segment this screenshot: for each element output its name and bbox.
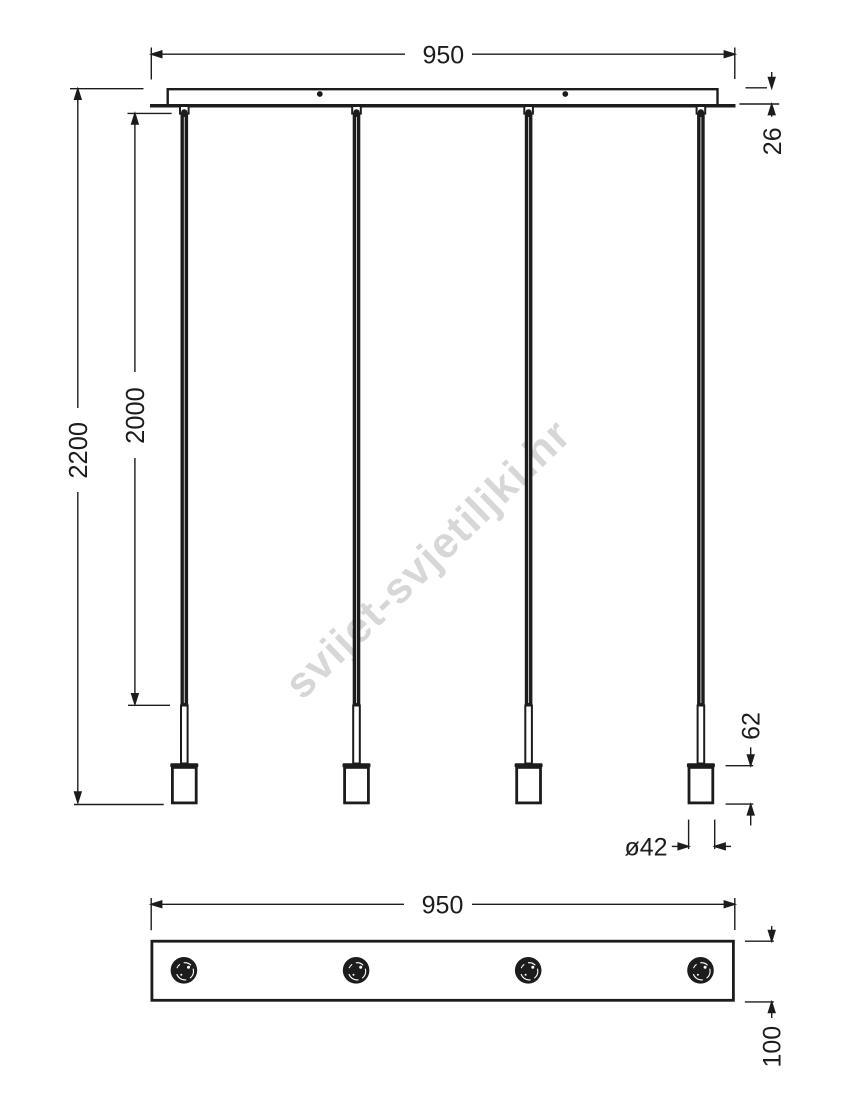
svg-text:62: 62 xyxy=(738,712,766,740)
svg-text:950: 950 xyxy=(422,41,464,69)
svg-text:2200: 2200 xyxy=(65,422,93,479)
svg-text:100: 100 xyxy=(759,1026,787,1068)
svg-text:26: 26 xyxy=(759,127,787,155)
svg-text:ø42: ø42 xyxy=(625,834,668,862)
svg-text:svijet-svjetiljki.hr: svijet-svjetiljki.hr xyxy=(276,409,582,708)
svg-text:950: 950 xyxy=(422,891,464,919)
svg-text:2000: 2000 xyxy=(122,387,150,444)
